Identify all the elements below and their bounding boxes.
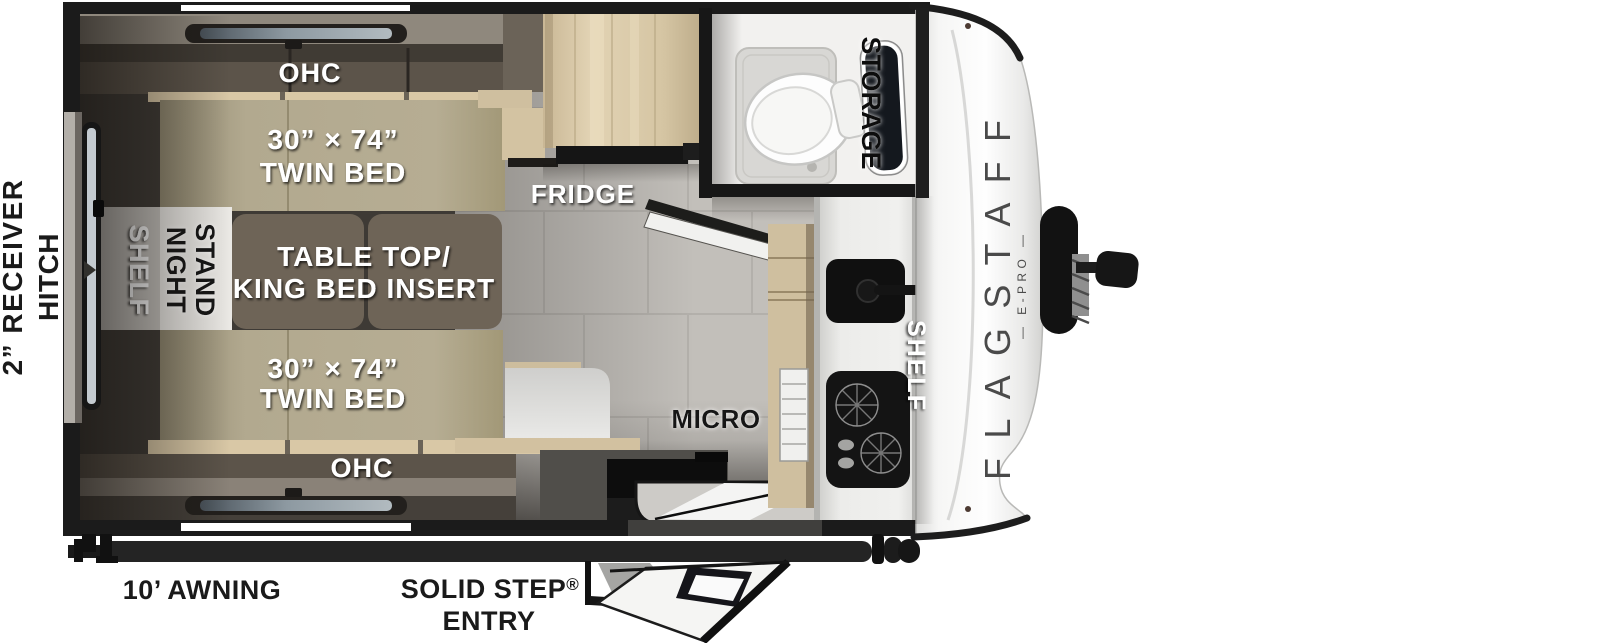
svg-text:10’ AWNING: 10’ AWNING bbox=[123, 575, 282, 605]
svg-text:30” × 74”: 30” × 74” bbox=[267, 124, 398, 155]
svg-text:TWIN BED: TWIN BED bbox=[260, 157, 406, 188]
svg-text:FRIDGE: FRIDGE bbox=[531, 179, 635, 209]
svg-text:SOLID STEP®: SOLID STEP® bbox=[401, 574, 580, 604]
svg-text:OHC: OHC bbox=[279, 58, 342, 88]
svg-text:SHELF: SHELF bbox=[902, 320, 930, 412]
svg-text:ENTRY: ENTRY bbox=[442, 606, 535, 636]
svg-text:MICRO: MICRO bbox=[671, 404, 760, 434]
svg-text:30” × 74”: 30” × 74” bbox=[267, 353, 398, 384]
svg-text:STORAGE: STORAGE bbox=[856, 36, 886, 169]
svg-text:TABLE TOP/: TABLE TOP/ bbox=[277, 241, 451, 272]
svg-text:TWIN BED: TWIN BED bbox=[260, 383, 406, 414]
svg-text:HITCH: HITCH bbox=[33, 233, 64, 321]
svg-text:2” RECEIVER: 2” RECEIVER bbox=[0, 179, 28, 376]
svg-text:FLAGSTAFF: FLAGSTAFF bbox=[977, 120, 1018, 480]
svg-text:KING BED INSERT: KING BED INSERT bbox=[233, 273, 495, 304]
svg-text:OHC: OHC bbox=[331, 453, 394, 483]
